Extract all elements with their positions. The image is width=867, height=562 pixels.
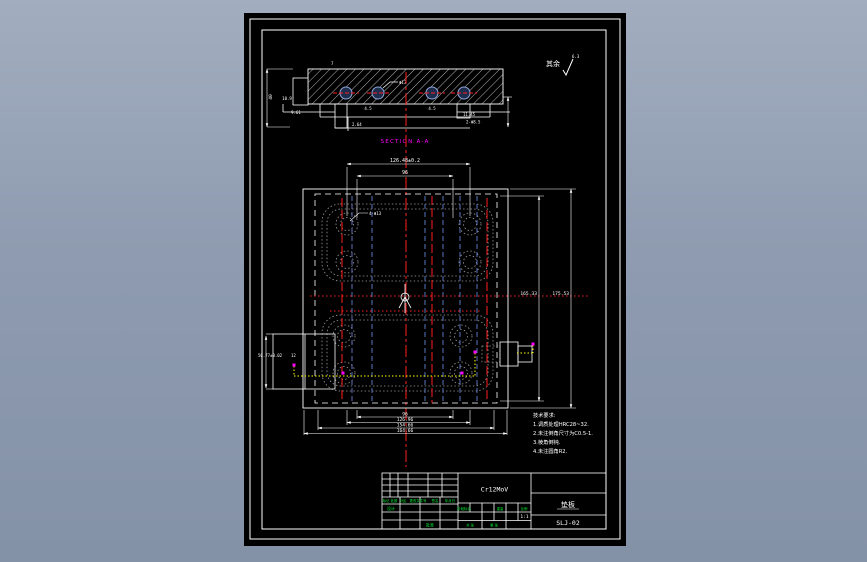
cad-viewer-window: 其余 6.3 <box>0 0 867 562</box>
dim-text: 11.45 <box>463 112 476 117</box>
dim-text: 9.61 <box>291 110 301 115</box>
dim-text: 4-Φ13 <box>369 211 382 216</box>
dim-text: 126.48±0.2 <box>390 158 420 164</box>
scale-value: 1:1 <box>520 514 528 520</box>
rev-header: 处数 <box>391 498 398 503</box>
dim-text: 96 <box>402 412 408 418</box>
dim-text: 2-Φ8.5 <box>466 120 481 125</box>
drawing-number-text: SLJ-02 <box>556 519 580 527</box>
dim-text: 12 <box>291 353 296 358</box>
dim-text: 175.53 <box>552 291 569 297</box>
sheet-left-label: 共 张 <box>466 523 474 528</box>
weight-label: 重量 <box>497 506 504 511</box>
dim-text: 50.77±0.02 <box>258 353 283 358</box>
notes-title: 技术要求: <box>533 411 556 419</box>
note-line: 2.未注倒角尺寸为C0.5-1. <box>533 429 593 437</box>
stage-label: 阶段标记 <box>457 506 471 511</box>
sheet-right-label: 第 张 <box>490 523 498 528</box>
dim-text: 10.9 <box>282 96 292 101</box>
surface-prefix-text: 其余 <box>546 59 560 68</box>
drawing-area: 其余 6.3 <box>0 0 867 562</box>
dim-text: 2.64 <box>352 122 362 127</box>
part-name-text: 垫板 <box>561 500 575 509</box>
dim-text: 4.5 <box>428 106 436 111</box>
rev-header: 标记 <box>383 498 390 503</box>
dim-text: 165.33 <box>520 291 537 297</box>
surface-value-text: 6.3 <box>572 54 580 59</box>
dim-text: 164.66 <box>397 428 414 434</box>
note-line: 4.未注圆角R2. <box>533 447 568 455</box>
scale-label: 比例 <box>521 506 528 511</box>
rev-header: 分区 <box>400 498 407 503</box>
design-label: 设计 <box>387 505 395 511</box>
dim-text: 96 <box>402 170 408 176</box>
rev-header: 签名 <box>432 498 439 503</box>
dim-text: 126.96 <box>397 417 414 423</box>
approve-label: 批准 <box>426 522 434 528</box>
note-line: 3.棱角倒钝. <box>533 438 561 446</box>
section-label: SECTION A-A <box>380 139 429 145</box>
rev-header: 年月日 <box>445 498 455 503</box>
dim-text: 40 <box>268 94 274 100</box>
dim-text: 154.66 <box>397 423 414 429</box>
note-line: 1.调质处理HRC28~32. <box>533 420 589 428</box>
section-left-cap <box>293 78 308 105</box>
material-text: Cr12MoV <box>481 486 508 494</box>
rev-header: 更改文件号 <box>410 498 428 503</box>
dim-text: 4.5 <box>364 106 372 111</box>
